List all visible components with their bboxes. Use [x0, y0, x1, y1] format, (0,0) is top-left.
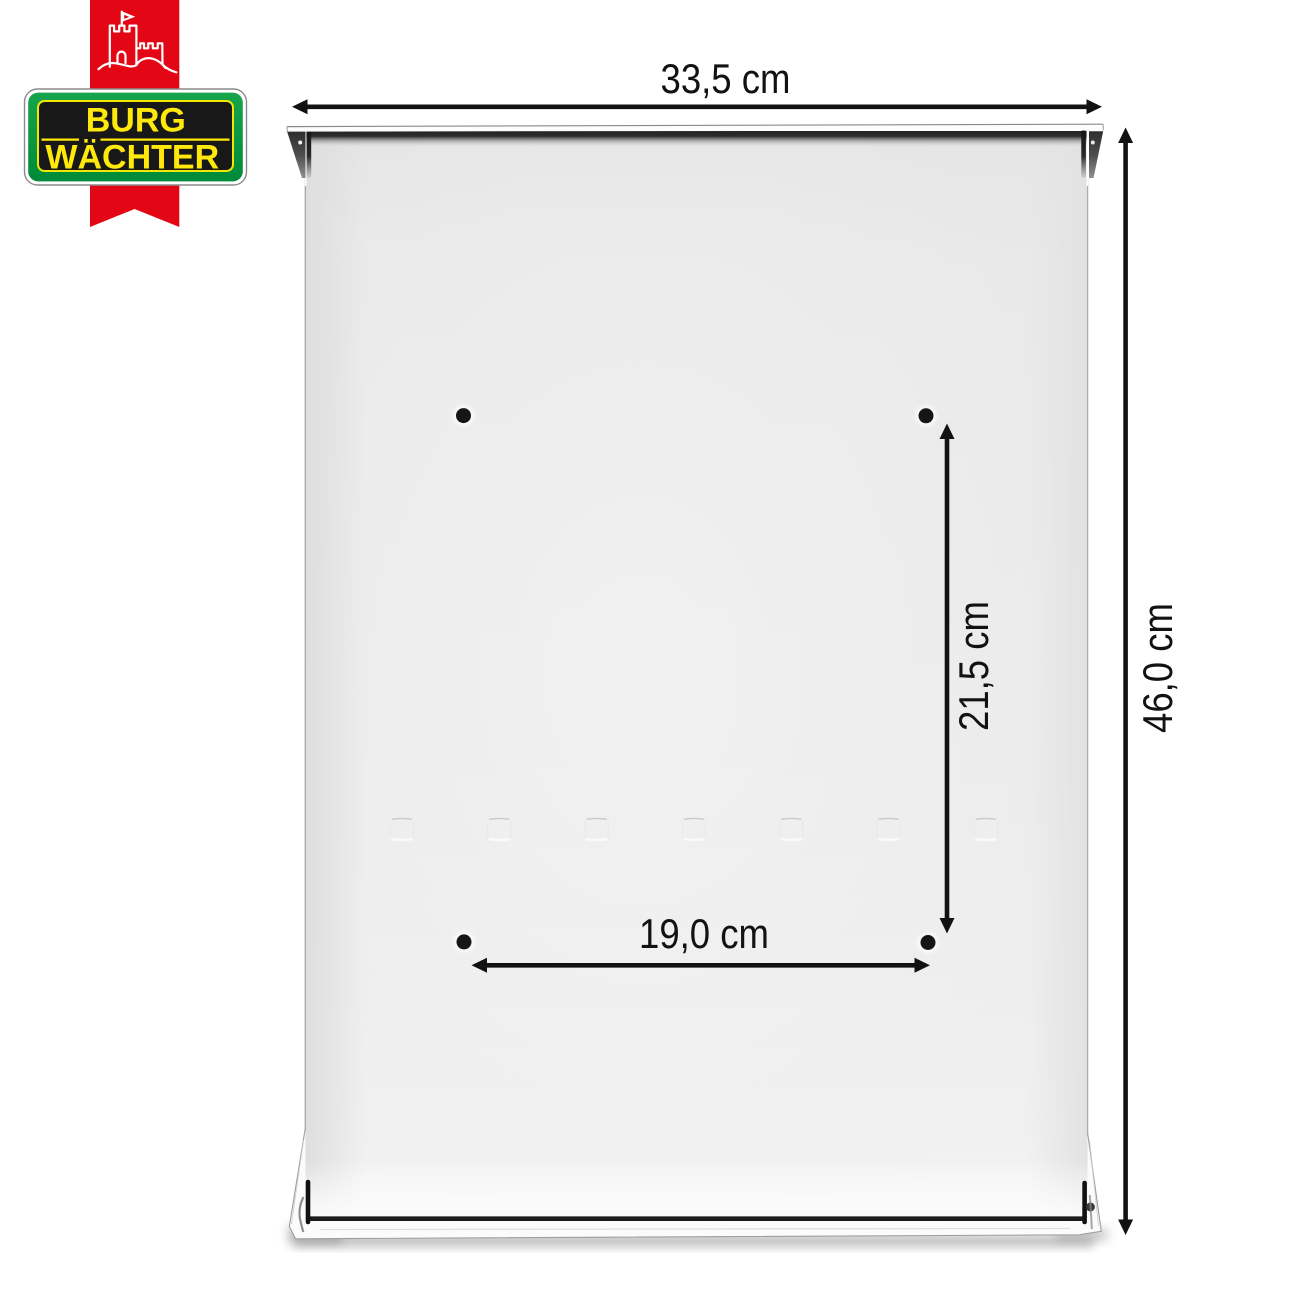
svg-text:WÄCHTER: WÄCHTER: [45, 139, 219, 177]
svg-text:19,0 cm: 19,0 cm: [639, 911, 769, 958]
svg-text:46,0 cm: 46,0 cm: [1135, 603, 1182, 733]
svg-text:BURG: BURG: [86, 101, 186, 139]
svg-text:21,5 cm: 21,5 cm: [951, 601, 998, 731]
svg-text:33,5 cm: 33,5 cm: [661, 56, 791, 103]
